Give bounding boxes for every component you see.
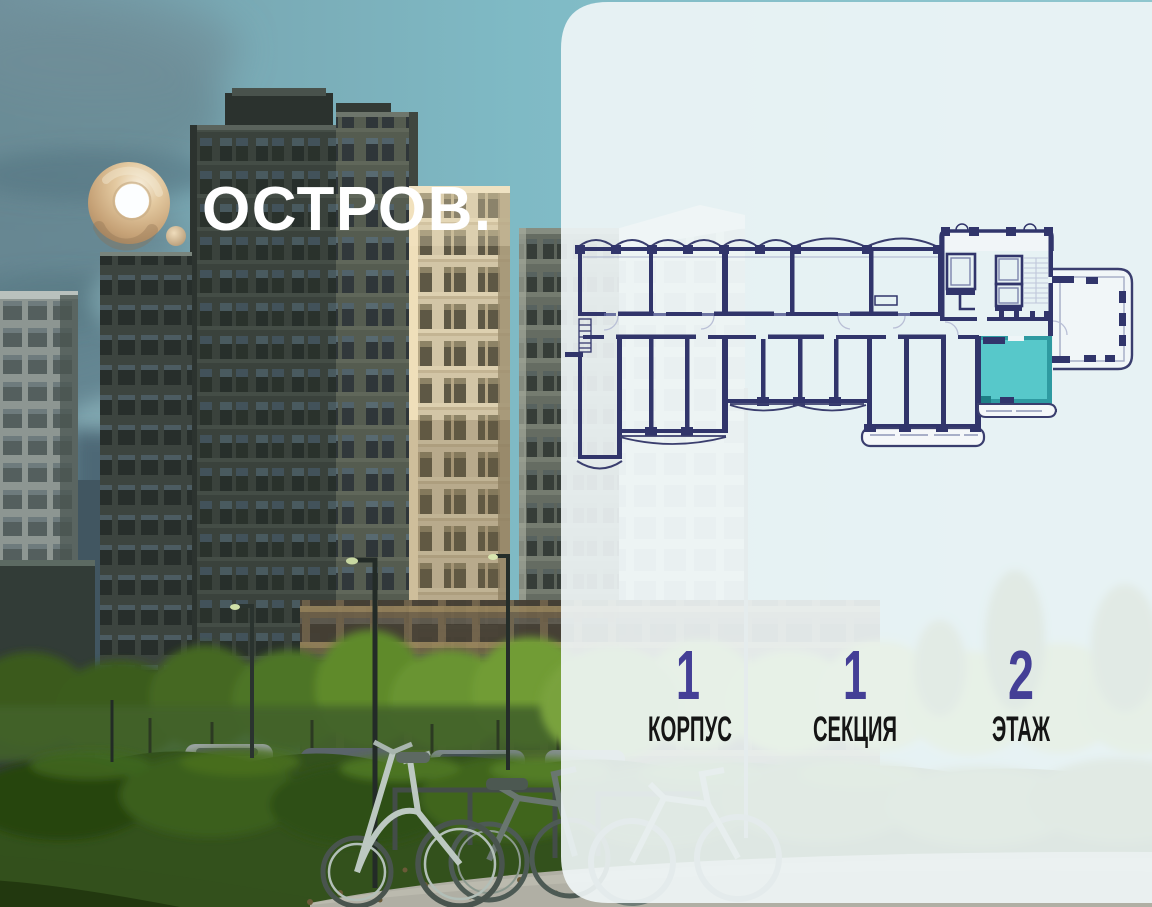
- svg-text:ОСТРОВ.: ОСТРОВ.: [202, 175, 493, 244]
- svg-text:КОРПУС: КОРПУС: [648, 710, 732, 749]
- svg-text:1: 1: [843, 636, 867, 714]
- svg-text:2: 2: [1008, 636, 1034, 714]
- svg-text:1: 1: [676, 636, 700, 714]
- svg-text:СЕКЦИЯ: СЕКЦИЯ: [813, 710, 897, 749]
- svg-text:ЭТАЖ: ЭТАЖ: [992, 710, 1050, 749]
